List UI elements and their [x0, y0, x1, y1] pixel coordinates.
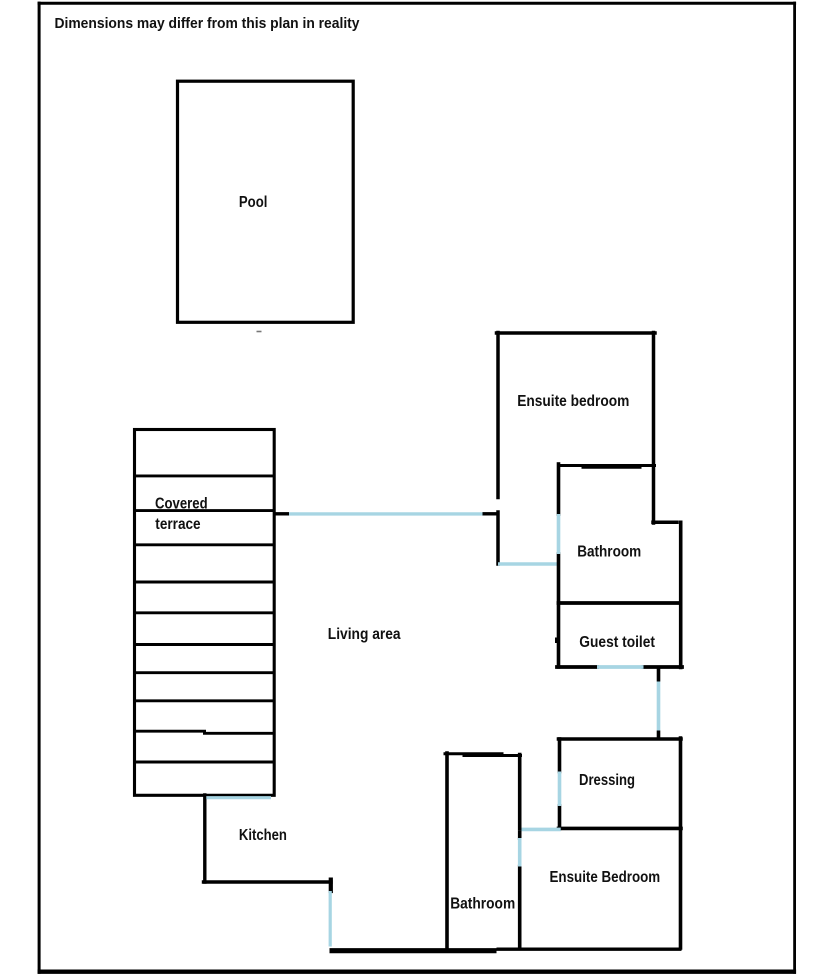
- svg-text:Covered: Covered: [155, 496, 208, 513]
- svg-text:Bathroom: Bathroom: [450, 895, 515, 912]
- svg-text:Pool: Pool: [239, 194, 268, 211]
- svg-text:terrace: terrace: [155, 516, 200, 533]
- svg-text:Ensuite bedroom: Ensuite bedroom: [517, 393, 629, 410]
- svg-text:Living area: Living area: [328, 626, 401, 643]
- svg-text:Bathroom: Bathroom: [577, 543, 641, 560]
- svg-text:Kitchen: Kitchen: [239, 827, 287, 844]
- svg-text:Dressing: Dressing: [579, 772, 635, 789]
- svg-text:Dimensions may differ from thi: Dimensions may differ from this plan in …: [55, 15, 361, 32]
- svg-text:Guest toilet: Guest toilet: [579, 634, 655, 651]
- svg-text:Ensuite Bedroom: Ensuite Bedroom: [550, 869, 661, 886]
